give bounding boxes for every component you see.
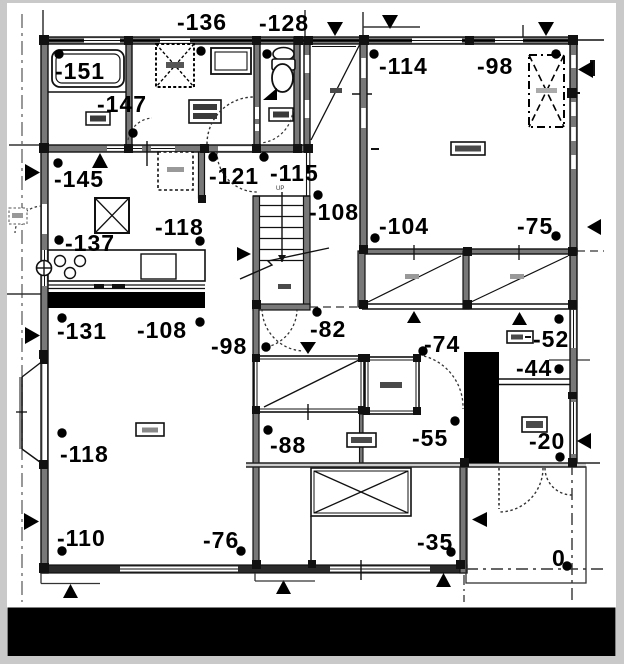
svg-text:-145: -145 [54,166,104,192]
svg-text:-35: -35 [417,529,453,555]
svg-text:-118: -118 [60,441,109,467]
svg-text:-108: -108 [309,199,359,225]
svg-text:-88: -88 [270,432,306,458]
svg-text:-137: -137 [65,230,115,256]
svg-text:-128: -128 [259,10,309,36]
svg-text:-121: -121 [209,163,259,189]
svg-text:-131: -131 [57,318,107,344]
svg-text:-104: -104 [379,213,429,239]
svg-text:-55: -55 [412,425,448,451]
svg-text:-114: -114 [379,53,428,79]
svg-text:0: 0 [552,545,566,571]
svg-text:-98: -98 [477,53,513,79]
svg-text:-20: -20 [529,428,565,454]
svg-text:-110: -110 [57,525,106,551]
svg-text:-98: -98 [211,333,247,359]
svg-text:-82: -82 [310,316,346,342]
svg-text:UP: UP [276,186,284,192]
svg-text:-76: -76 [203,527,239,553]
svg-text:-151: -151 [55,58,105,84]
svg-text:-136: -136 [177,9,227,35]
svg-text:-75: -75 [517,213,553,239]
svg-text:-118: -118 [155,214,204,240]
svg-text:-115: -115 [270,160,319,186]
svg-text:-52: -52 [533,326,569,352]
svg-text:-108: -108 [137,317,187,343]
svg-text:-147: -147 [97,91,147,117]
svg-text:-44: -44 [516,355,552,381]
svg-text:-74: -74 [424,331,460,357]
